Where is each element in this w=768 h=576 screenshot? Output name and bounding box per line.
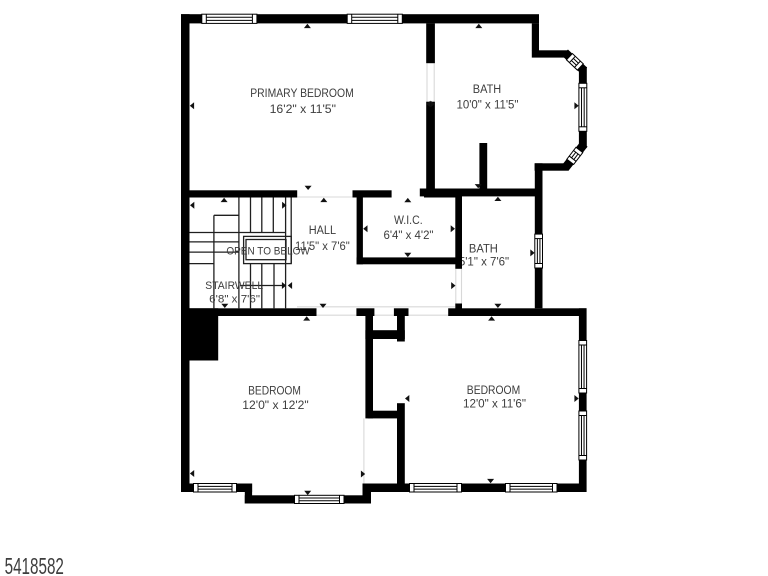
svg-text:OPEN TO BELOW: OPEN TO BELOW — [226, 245, 310, 257]
svg-text:12'0" x 11'6": 12'0" x 11'6" — [463, 397, 526, 411]
svg-text:5'1" x 7'6": 5'1" x 7'6" — [459, 255, 509, 269]
svg-text:STAIRWELL: STAIRWELL — [205, 280, 263, 292]
svg-text:16'2" x 11'5": 16'2" x 11'5" — [270, 102, 336, 116]
svg-text:BEDROOM: BEDROOM — [248, 384, 301, 398]
svg-text:12'0" x 12'2": 12'0" x 12'2" — [242, 398, 308, 412]
svg-text:5418582: 5418582 — [5, 553, 64, 576]
svg-text:BATH: BATH — [469, 241, 498, 255]
svg-text:W.I.C.: W.I.C. — [394, 213, 423, 227]
svg-text:10'0" x 11'5": 10'0" x 11'5" — [457, 97, 519, 111]
svg-text:6'8" x 7'6": 6'8" x 7'6" — [209, 293, 260, 305]
svg-text:HALL: HALL — [309, 223, 336, 237]
svg-text:PRIMARY BEDROOM: PRIMARY BEDROOM — [250, 86, 354, 100]
svg-text:6'4" x 4'2": 6'4" x 4'2" — [384, 228, 434, 242]
svg-text:BATH: BATH — [473, 82, 501, 96]
svg-text:BEDROOM: BEDROOM — [467, 383, 520, 397]
